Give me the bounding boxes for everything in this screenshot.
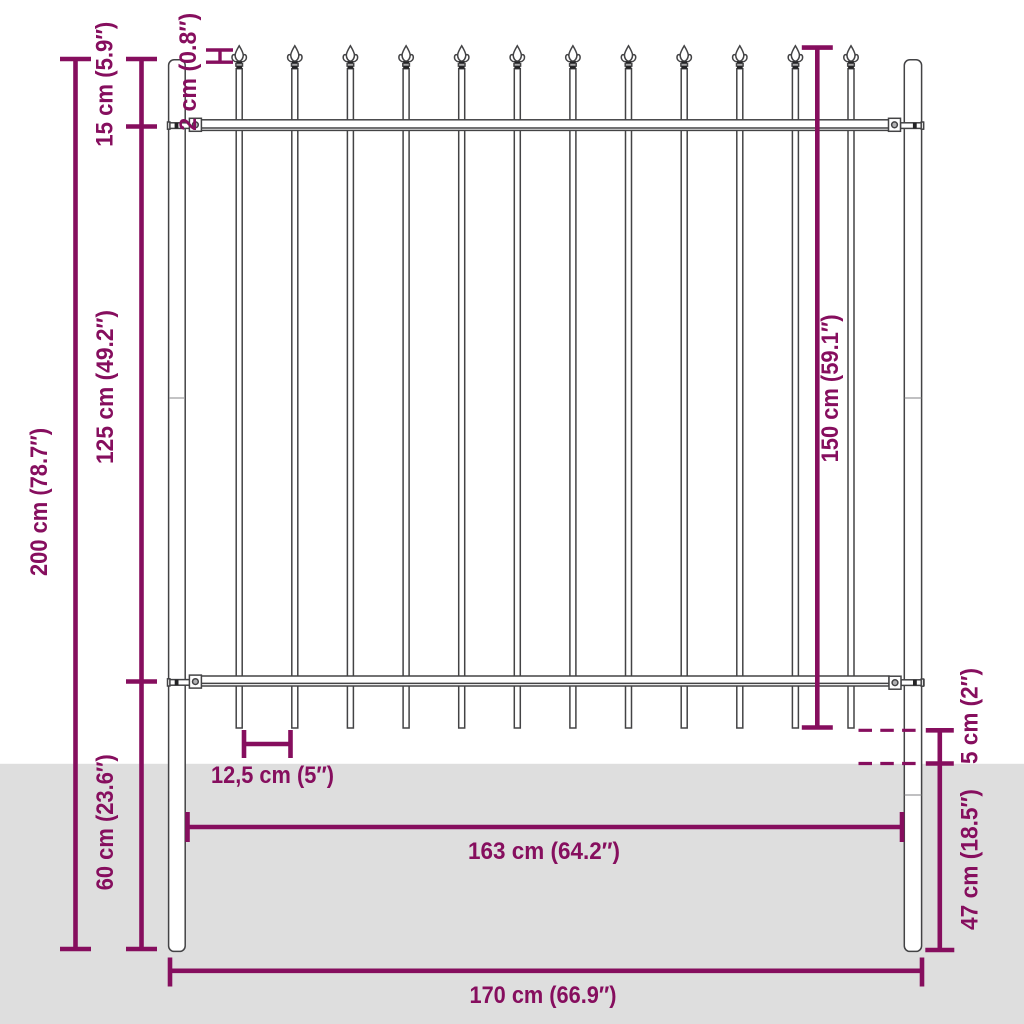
svg-text:12,5 cm (5″): 12,5 cm (5″) [211,762,334,789]
svg-text:200 cm (78.7″): 200 cm (78.7″) [26,428,53,576]
svg-text:5 cm (2″): 5 cm (2″) [957,668,984,764]
svg-text:163 cm (64.2″): 163 cm (64.2″) [468,838,620,865]
svg-text:170 cm (66.9″): 170 cm (66.9″) [470,982,617,1009]
svg-text:2 cm (0.8″): 2 cm (0.8″) [175,13,202,131]
svg-text:150 cm (59.1″): 150 cm (59.1″) [817,314,844,462]
svg-text:15 cm (5.9″): 15 cm (5.9″) [92,22,119,147]
svg-text:125 cm (49.2″): 125 cm (49.2″) [92,310,119,464]
svg-text:47 cm (18.5″): 47 cm (18.5″) [957,789,984,930]
svg-text:60 cm (23.6″): 60 cm (23.6″) [92,754,119,890]
